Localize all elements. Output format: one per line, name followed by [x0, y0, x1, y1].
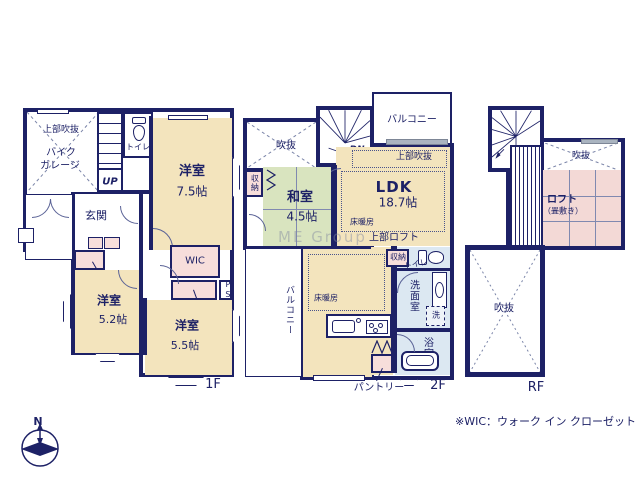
toilet-tank-icon: [132, 117, 146, 124]
f2-ldk-size: 18.7帖: [379, 196, 418, 209]
f2-basin-counter: [432, 272, 447, 308]
f1-window-north: [37, 109, 69, 114]
rf-void-top-label: 吹抜: [572, 152, 590, 162]
f2-ldk-name: LDK: [376, 179, 413, 196]
rf-loft-name: ロフト: [547, 195, 577, 206]
f2-upper-void-label: 上部吹抜: [396, 153, 432, 163]
f1-porch-step: [18, 228, 34, 243]
f1-room55-size: 5.5帖: [171, 340, 200, 352]
bathtub-icon: [401, 351, 439, 371]
kitchen-faucet-icon: [356, 318, 361, 323]
f2-pantry-folding-door-icon: [371, 340, 393, 354]
f1-porch: [25, 194, 73, 260]
f2-washitsu-folding-door-icon: [266, 169, 284, 191]
toilet-bowl-icon: [133, 125, 145, 141]
f1-room-55: [145, 300, 232, 375]
f1-genkan-cabinet-2: [104, 237, 120, 249]
f1-genkan-label: 玄関: [85, 210, 107, 222]
f1-ps-label: PS: [223, 280, 232, 300]
f1-toilet-label: トイレ: [126, 144, 150, 153]
f1-room52-name: 洋室: [97, 294, 121, 307]
f1-floor-label: 1F: [205, 378, 221, 392]
f2-toilet-bowl-icon: [428, 251, 444, 264]
f1-room75-size: 7.5帖: [176, 185, 207, 198]
f2-balcony-window: [386, 139, 448, 145]
f1-stairs-up-label: UP: [102, 177, 117, 188]
rf-window-north: [581, 139, 618, 144]
rf-floor-label: RF: [528, 381, 545, 395]
f1-bay-window-south-52: [95, 353, 120, 362]
washbasin-icon: [435, 282, 444, 298]
f2-upper-loft-label: 上部ロフト: [369, 233, 419, 244]
f2-washitsu-name: 和室: [287, 191, 313, 205]
f2-void-label: 吹抜: [276, 141, 296, 152]
kitchen-stove-icon: [366, 320, 388, 334]
f1-bay-window-south-55: [168, 377, 204, 386]
watermark: ME Group: [278, 228, 367, 246]
f1-bay-window-east-75: [232, 157, 240, 198]
rf-loft-sub: （畳敷き）: [543, 208, 583, 217]
f1-room55-name: 洋室: [175, 319, 199, 332]
f2-floor-heating-dining-label: 床暖房: [314, 295, 338, 304]
f1-window-north-75: [168, 115, 208, 120]
rf-ladder-strip: [510, 145, 543, 247]
f2-storage-left-label: 収納: [250, 174, 259, 192]
f1-closet-a: [74, 250, 105, 270]
f2-washitsu-size: 4.5帖: [286, 210, 317, 223]
f1-bay-window-east-55: [232, 309, 240, 343]
f2-floor-label: 2F: [430, 379, 446, 393]
rf-void-big-label: 吹抜: [494, 304, 514, 315]
f1-room52-size: 5.2帖: [99, 314, 128, 326]
f2-balcony-left-label: バルコニー: [283, 285, 293, 335]
f1-room75-name: 洋室: [179, 165, 205, 179]
f2-floor-heating-ldk-label: 床暖房: [350, 219, 374, 228]
wic-note: ※WIC：ウォーク イン クローゼット: [455, 413, 636, 429]
f2-balcony-top-label: バルコニー: [387, 115, 437, 126]
f1-upper-void-label: 上部吹抜: [43, 126, 79, 136]
floor-plan-canvas: 上部吹抜 バイク ガレージ UP トイレ 洋室 7.5帖 玄関 クローゼット 洋…: [0, 0, 640, 480]
f1-bike-garage-label-2: ガレージ: [40, 161, 80, 172]
f1-stairs: [97, 112, 123, 170]
f1-genkan-cabinet-1: [88, 237, 103, 249]
f2-washer-label: 洗: [432, 312, 440, 321]
compass-n-label: N: [33, 416, 42, 428]
f2-kitchen-counter: [326, 314, 392, 338]
f2-window-south: [313, 375, 365, 381]
f1-bike-garage-label-1: バイク: [46, 148, 76, 159]
f1-bay-window-west-52: [63, 294, 71, 329]
f1-wic-label: WIC: [185, 256, 205, 267]
f2-pantry-label: パントリー: [354, 383, 405, 394]
kitchen-sink-icon: [332, 320, 355, 333]
